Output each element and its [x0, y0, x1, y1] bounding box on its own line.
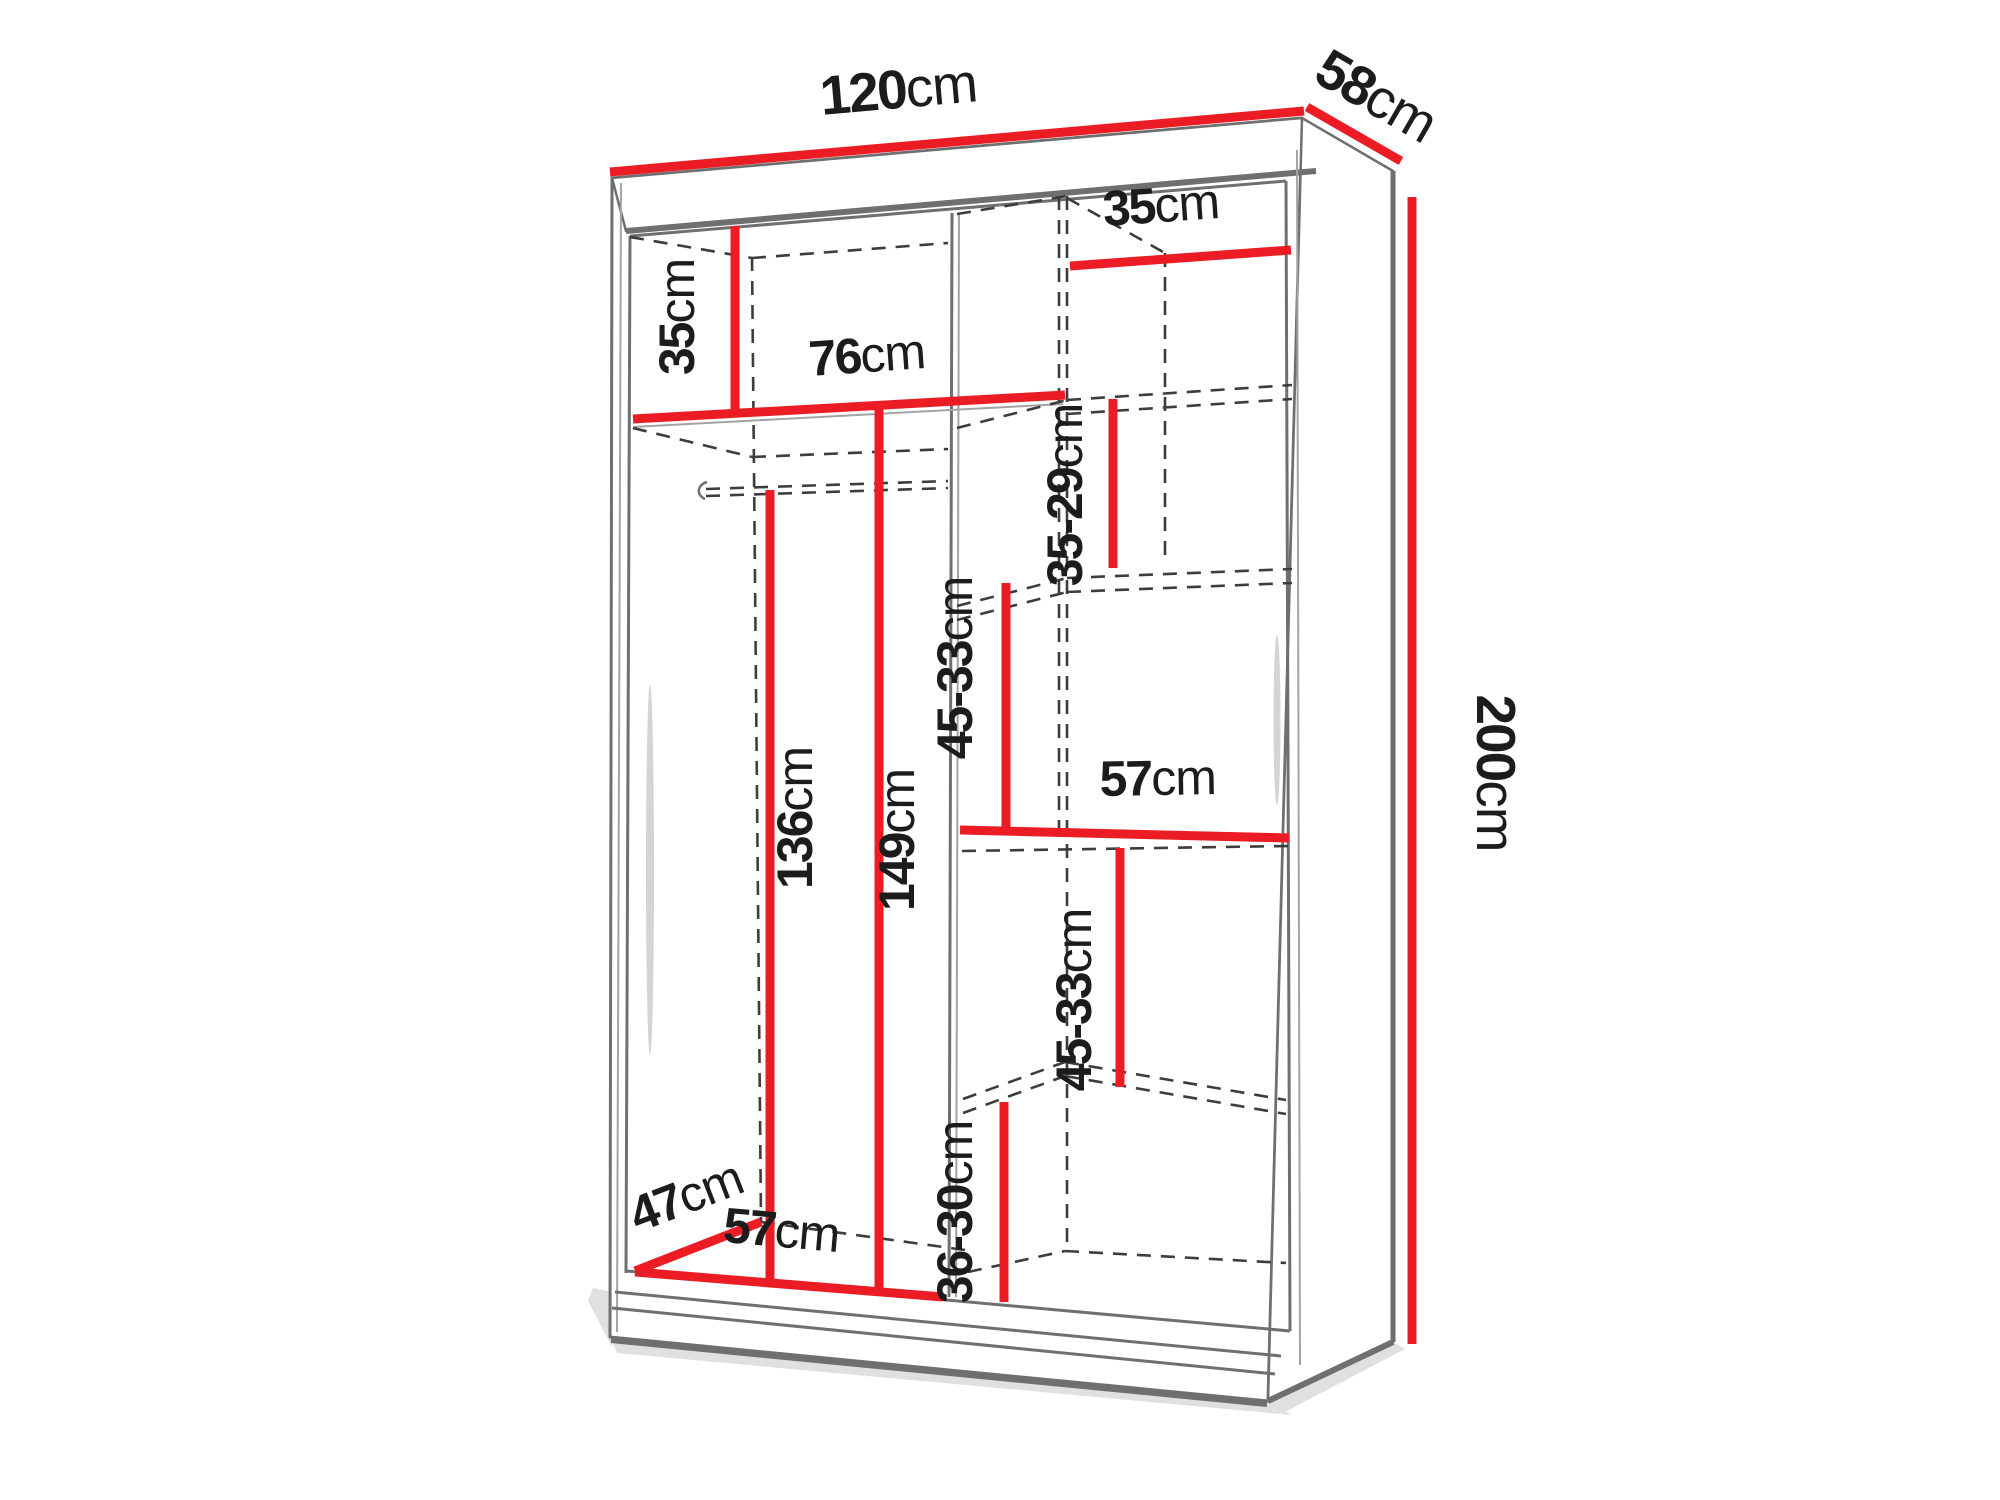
label-gap-36-30: 36-30cm	[927, 1121, 983, 1304]
label-gap-45-33-b: 45-33cm	[1046, 909, 1102, 1092]
label-left-upper-35: 35cm	[649, 259, 705, 375]
label-right-upper-35: 35cm	[1101, 173, 1221, 237]
label-gap-35-29: 35-29cm	[1037, 404, 1093, 587]
label-height-149: 149cm	[869, 769, 925, 911]
label-shelf-57: 57cm	[1099, 749, 1216, 807]
wardrobe-dimension-diagram: 120cm 58cm 200cm 35cm 76cm 35cm 35-29cm …	[0, 0, 2000, 1500]
label-width-120: 120cm	[817, 51, 979, 126]
left-door-reflection	[646, 685, 654, 1055]
label-gap-45-33-a: 45-33cm	[927, 577, 983, 760]
label-height-200: 200cm	[1465, 694, 1527, 851]
label-bottom-57: 57cm	[721, 1197, 842, 1263]
diagram-canvas: 120cm 58cm 200cm 35cm 76cm 35cm 35-29cm …	[0, 0, 2000, 1500]
right-door-reflection	[1274, 635, 1281, 805]
label-shelf-76: 76cm	[807, 323, 927, 387]
label-hanging-136: 136cm	[767, 747, 823, 889]
